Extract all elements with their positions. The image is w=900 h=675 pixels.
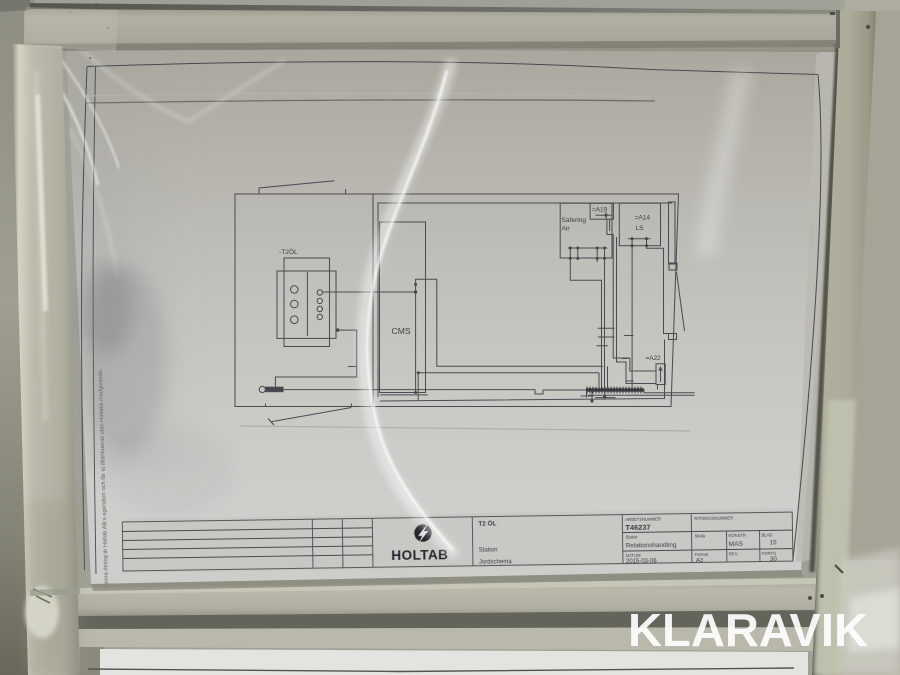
svg-text:LS: LS (636, 225, 645, 232)
svg-text:REV: REV (729, 551, 738, 556)
svg-text:BLAD: BLAD (762, 532, 773, 537)
svg-text:HOLTAB: HOLTAB (391, 547, 448, 563)
svg-text:Format: Format (695, 552, 709, 557)
svg-text:15: 15 (770, 539, 778, 546)
svg-text:Jordschema: Jordschema (479, 559, 512, 565)
svg-text:-T2ÖL: -T2ÖL (279, 248, 298, 256)
svg-text:Air: Air (562, 226, 571, 233)
svg-text:Safering: Safering (562, 217, 587, 224)
svg-text:30: 30 (770, 556, 778, 563)
svg-text:CMS: CMS (392, 326, 411, 336)
svg-text:Status: Status (626, 534, 638, 539)
svg-text:MAS: MAS (729, 541, 744, 548)
svg-text:=A14: =A14 (635, 215, 651, 222)
svg-text:T46237: T46237 (625, 523, 650, 532)
svg-text:=A22: =A22 (646, 355, 662, 362)
svg-text:KLARAVIK: KLARAVIK (628, 604, 868, 656)
svg-text:Skala: Skala (695, 533, 706, 538)
svg-text:Relationshandling: Relationshandling (626, 542, 677, 550)
svg-text:DATUM: DATUM (626, 553, 641, 558)
svg-text:T2 ÖL: T2 ÖL (478, 518, 496, 527)
svg-text:KONSTR: KONSTR (729, 533, 747, 538)
svg-text:ARBETSNUMMER: ARBETSNUMMER (625, 517, 661, 523)
svg-text:Station: Station (479, 547, 498, 553)
svg-text:=A19: =A19 (592, 207, 608, 214)
svg-text:2015-03-06: 2015-03-06 (626, 559, 657, 565)
svg-text:RITNINGSNUMMER: RITNINGSNUMMER (694, 515, 733, 521)
svg-text:A3: A3 (696, 558, 703, 564)
